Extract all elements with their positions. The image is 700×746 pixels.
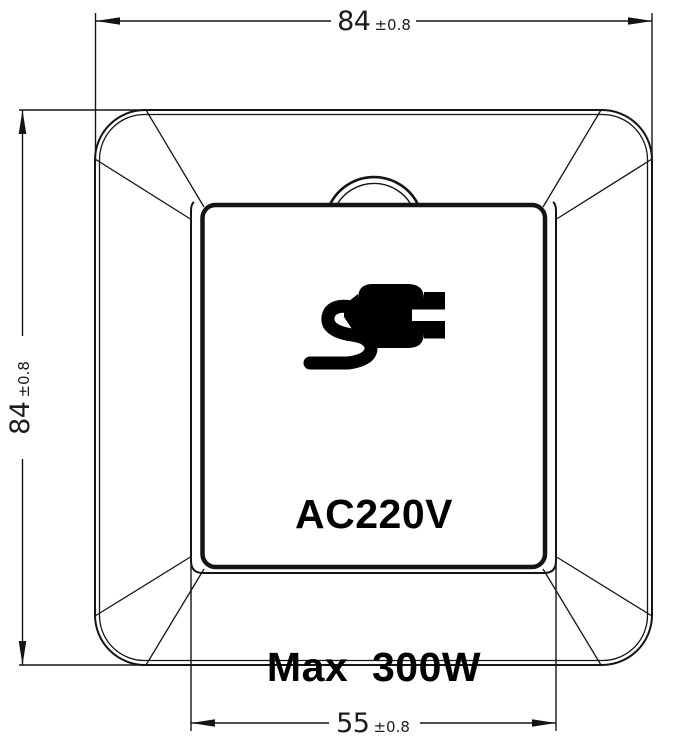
technical-drawing-socket-plate: 84 ±0.8 84 ±0.8 55 ±0.8 AC220V Max 300W <box>0 0 700 746</box>
arrowhead-up <box>19 110 27 134</box>
dimension-label-width: 84 ±0.8 <box>337 6 411 38</box>
top-notch-arc <box>330 177 418 204</box>
arrowhead-right <box>628 17 652 25</box>
panel-rating-text: AC220V Max 300W <box>267 387 481 746</box>
arrowhead-right <box>532 719 556 727</box>
dimension-value: 84 <box>5 402 37 435</box>
dimension-tolerance: ±0.8 <box>15 361 33 397</box>
arrowhead-left <box>191 719 215 727</box>
dimension-tolerance: ±0.8 <box>374 16 410 34</box>
power-plug-icon <box>310 284 446 363</box>
dimension-left <box>19 110 152 665</box>
panel-max-power-text: Max 300W <box>267 642 481 693</box>
panel-voltage-text: AC220V <box>267 489 481 540</box>
arrowhead-left <box>96 17 120 25</box>
dimension-label-height: 84 ±0.8 <box>5 361 37 435</box>
arrowhead-down <box>19 641 27 665</box>
dimension-value: 84 <box>337 6 370 38</box>
